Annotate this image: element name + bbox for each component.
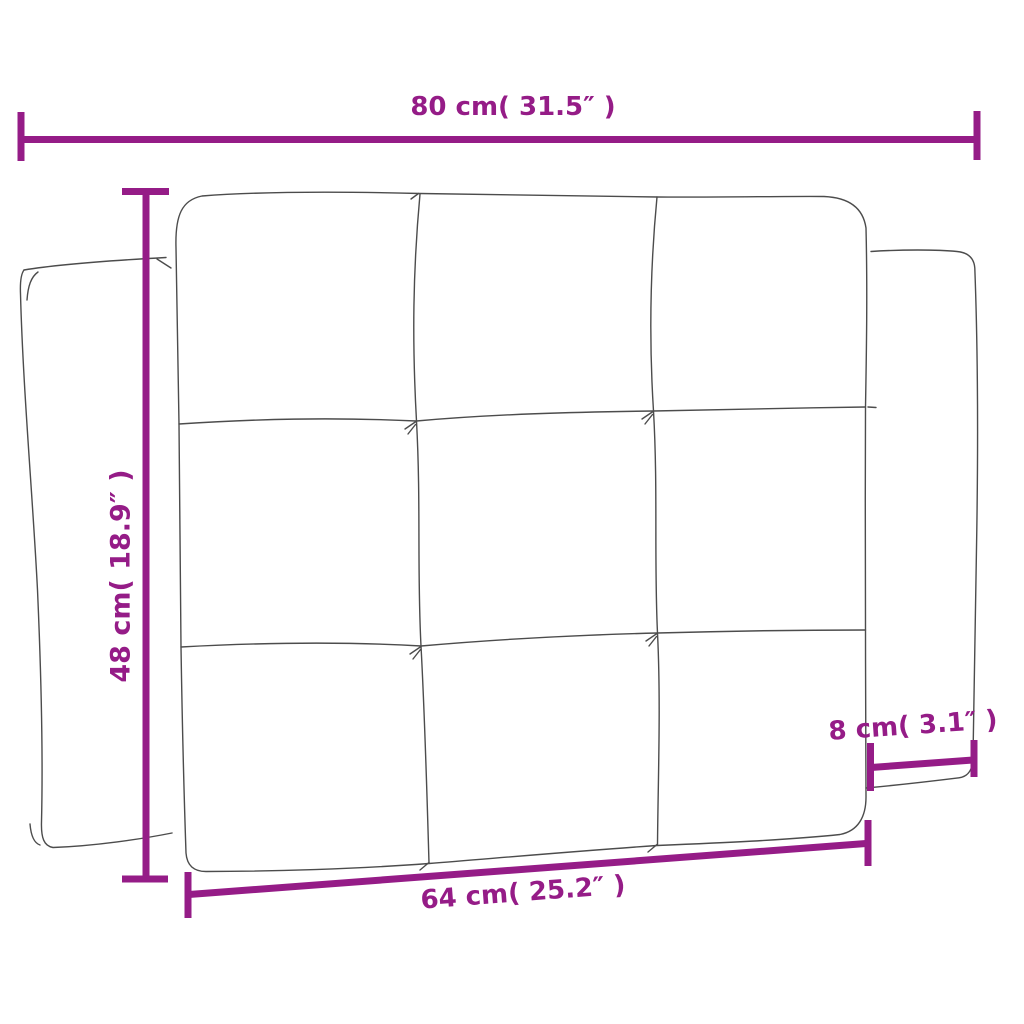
cushion-vertical-seam-right xyxy=(651,197,659,845)
pinch-mark xyxy=(410,647,421,660)
height-dimension-label: 48 cm( 18.9″ ) xyxy=(108,469,135,682)
left-flap-tuck-line xyxy=(157,259,171,268)
left-flap-corner-detail xyxy=(27,272,38,300)
right-flap-seam-tick xyxy=(868,407,876,408)
pinch-mark xyxy=(411,194,419,200)
tuft-pinch-marks xyxy=(405,194,657,871)
headboard-line-drawing xyxy=(0,0,1024,1024)
width-dimension-label: 80 cm( 31.5″ ) xyxy=(410,94,615,120)
cushion xyxy=(176,192,867,871)
headboard-artwork xyxy=(20,192,977,871)
pinch-mark xyxy=(405,422,416,435)
dimension-lines xyxy=(21,111,977,918)
flap-depth-dimension xyxy=(871,740,975,791)
cushion-horizontal-seam-lower xyxy=(181,630,866,647)
cushion-vertical-seam-left xyxy=(414,194,429,863)
flap-depth-dimension-line xyxy=(871,760,973,768)
pinch-mark xyxy=(642,412,653,425)
pinch-mark xyxy=(646,634,657,647)
cushion-outline xyxy=(176,192,867,871)
cushion-horizontal-seam-upper xyxy=(179,407,866,424)
dimension-diagram: 80 cm( 31.5″ ) 48 cm( 18.9″ ) 8 cm( 3.1″… xyxy=(0,0,1024,1024)
left-flap-bottom-corner-detail xyxy=(30,824,40,845)
